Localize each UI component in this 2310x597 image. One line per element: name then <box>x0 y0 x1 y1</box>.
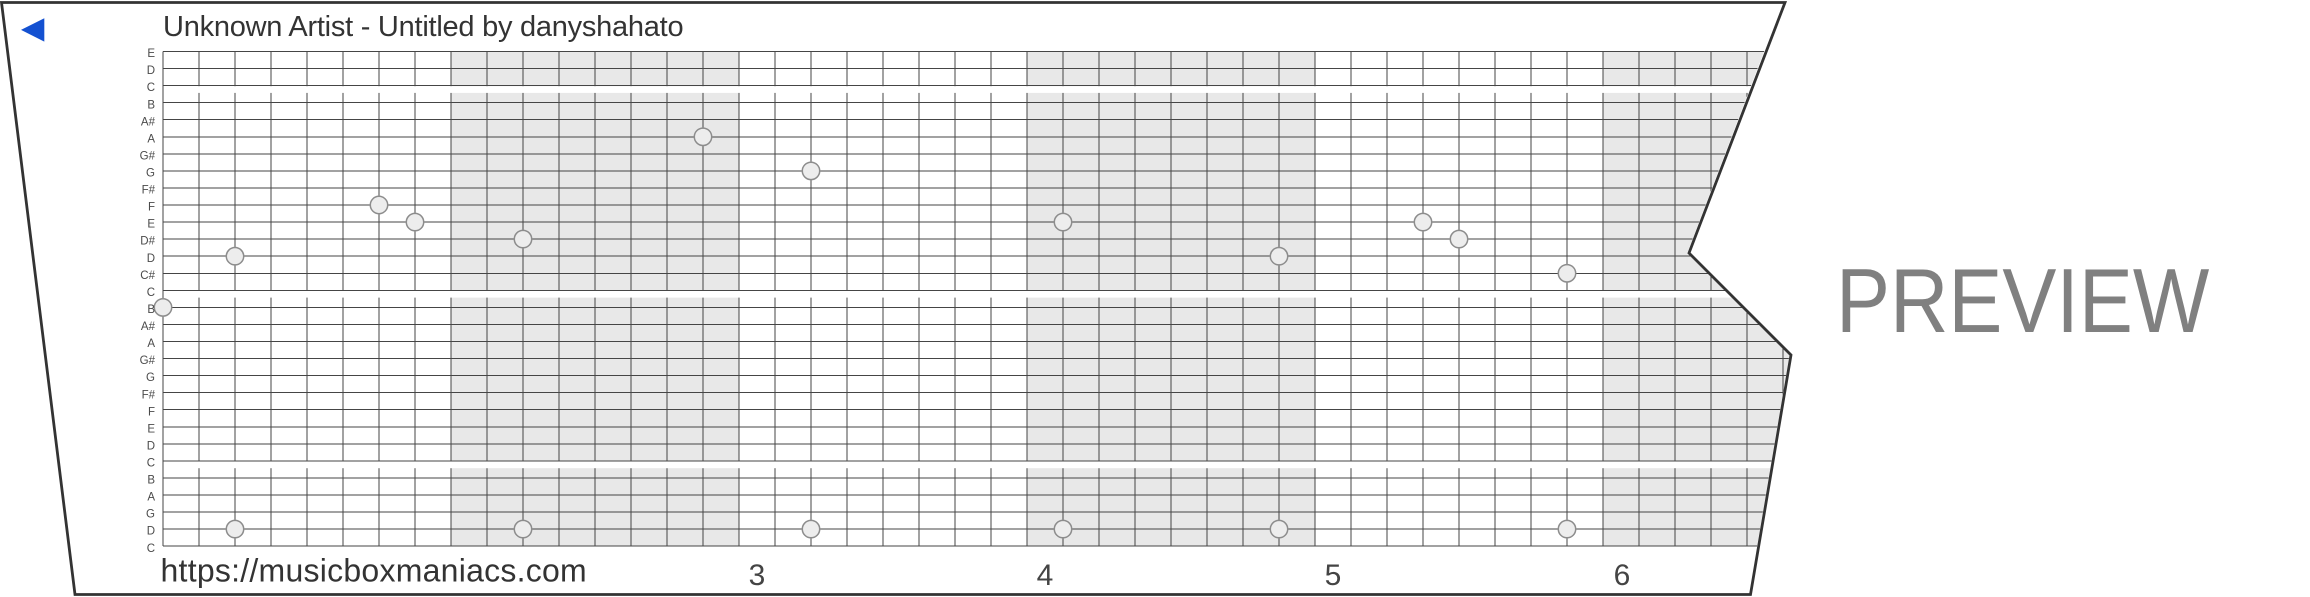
svg-text:A#: A# <box>141 321 156 333</box>
svg-text:C: C <box>147 287 155 299</box>
svg-text:B: B <box>147 99 155 111</box>
svg-text:A: A <box>147 338 155 350</box>
svg-text:A#: A# <box>141 116 156 128</box>
svg-text:C: C <box>147 458 155 470</box>
svg-text:G: G <box>146 509 155 521</box>
svg-text:https://musicboxmaniacs.com: https://musicboxmaniacs.com <box>161 552 587 588</box>
svg-text:D: D <box>147 440 155 452</box>
svg-text:E: E <box>147 219 155 231</box>
svg-text:E: E <box>147 48 155 60</box>
svg-text:F#: F# <box>142 185 156 197</box>
svg-text:PREVIEW: PREVIEW <box>1836 251 2209 352</box>
svg-text:G#: G# <box>140 150 156 162</box>
svg-text:D: D <box>147 65 155 77</box>
svg-text:D: D <box>147 526 155 538</box>
svg-text:5: 5 <box>1325 559 1342 592</box>
svg-text:G: G <box>146 168 155 180</box>
svg-text:C: C <box>147 543 155 555</box>
svg-text:A: A <box>147 492 155 504</box>
svg-text:D#: D# <box>140 236 155 248</box>
svg-text:A: A <box>147 133 155 145</box>
svg-text:B: B <box>147 304 155 316</box>
svg-text:Unknown Artist - Untitled by d: Unknown Artist - Untitled by danyshahato <box>163 11 683 43</box>
svg-text:C: C <box>147 82 155 94</box>
svg-text:F: F <box>148 202 155 214</box>
svg-text:C#: C# <box>140 270 155 282</box>
svg-text:F#: F# <box>142 389 156 401</box>
svg-text:4: 4 <box>1037 559 1054 592</box>
svg-text:G#: G# <box>140 355 156 367</box>
svg-text:G: G <box>146 372 155 384</box>
svg-text:D: D <box>147 253 155 265</box>
svg-text:F: F <box>148 406 155 418</box>
svg-text:E: E <box>147 423 155 435</box>
svg-text:3: 3 <box>749 559 766 592</box>
svg-text:6: 6 <box>1614 559 1631 592</box>
svg-text:B: B <box>147 475 155 487</box>
